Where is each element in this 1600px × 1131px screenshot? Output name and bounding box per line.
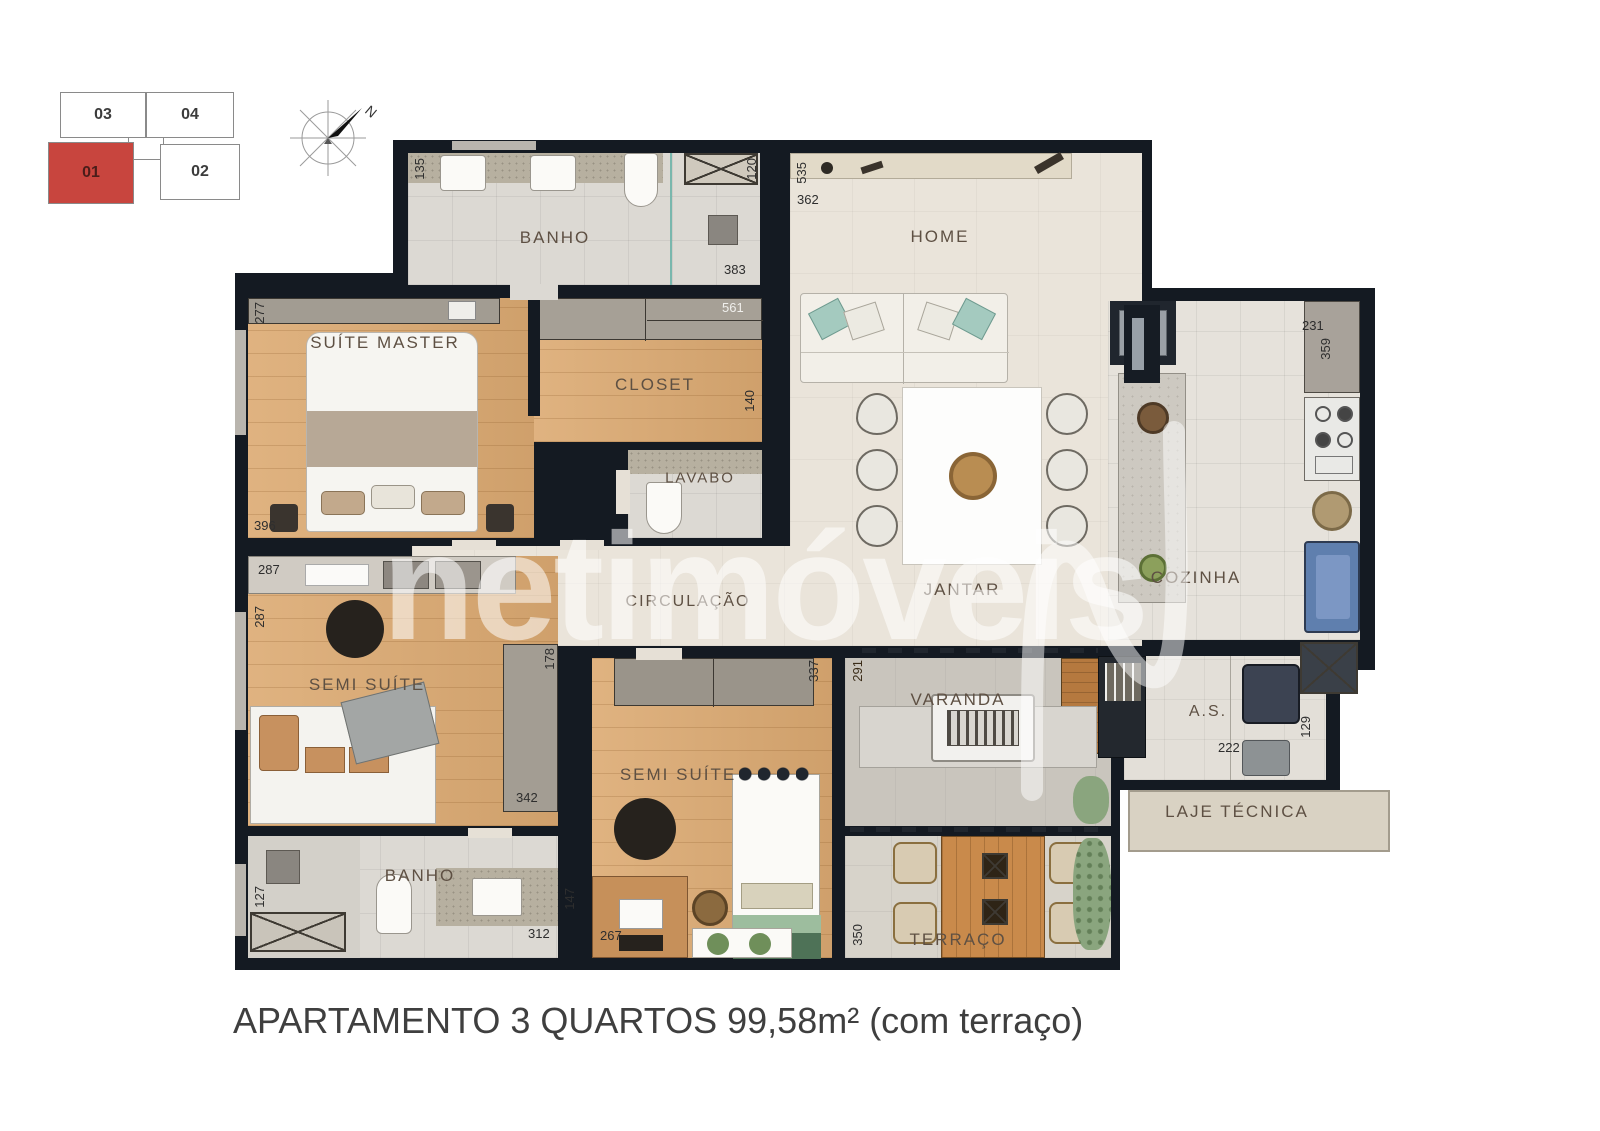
dim-semi1-top: 287 [258,562,280,577]
banho2-shower-bench [250,912,346,952]
terraco-placemat-2 [982,899,1008,925]
home-sofa-seatline [801,352,1009,353]
home-sofa [800,293,1008,383]
semi2-wardrobe [614,658,814,706]
stove-burner-2 [1337,406,1353,422]
varanda-plant [1073,776,1109,824]
cozinha-stove [1304,397,1360,481]
semi1-desk-monitor [383,561,429,589]
cozinha-bottom-cabinet [1300,642,1358,694]
banho-suite-toilet [624,153,658,207]
stove-burner-1 [1315,406,1331,422]
label-varanda: VARANDA [911,690,1006,710]
cozinha-island-bowl [1137,402,1169,434]
semi1-chair [326,600,384,658]
as-washer [1242,664,1300,724]
dim-cozinha-top: 231 [1302,318,1324,333]
window-banho-social [235,864,246,936]
semi2-bowl [692,890,728,926]
label-lavabo: LAVABO [665,470,735,487]
dim-closet-width: 561 [722,300,744,315]
door-suite-master [560,540,604,550]
dim-banho-width: 383 [724,262,746,277]
home-sideboard [790,153,1072,179]
jantar-centerpiece [949,452,997,500]
stove-burner-3 [1315,432,1331,448]
banho-suite-sink-2 [530,155,576,191]
semi1-pillow-side [259,715,299,771]
door-semi-suite-1 [452,540,496,550]
unit-03-label: 03 [94,106,112,124]
dim-cozinha-side: 359 [1318,338,1333,360]
terraco-hedge [1073,838,1111,950]
suite-master-bed [306,332,478,532]
terraco-boundary [850,827,1102,832]
key-plan-unit-02: 02 [160,144,240,200]
jantar-chair-right-1 [1046,393,1088,435]
key-plan-unit-01-highlighted: 01 [48,142,134,204]
varanda-grill-grate [947,710,1019,746]
suite-master-pillow-2 [371,485,415,509]
label-area-servico: A.S. [1189,703,1227,721]
room-semi-suite-2 [592,658,832,958]
room-closet [534,298,762,442]
dim-closet-side: 140 [742,390,757,412]
dim-banho-left: 135 [412,158,427,180]
label-jantar: JANTAR [924,580,1001,600]
lavabo-toilet [646,482,682,534]
banho-suite-shower-drain [708,215,738,245]
dim-as-side: 129 [1298,716,1313,738]
dim-banho2-left: 127 [252,886,267,908]
stove-burner-4 [1337,432,1353,448]
banho-suite-shower-glass [670,153,672,285]
room-lavabo [628,450,762,538]
door-lavabo [616,470,630,514]
home-sofa-split [903,294,904,384]
terraco-placemat-1 [982,853,1008,879]
semi1-bed [250,706,436,824]
semi2-laptop [619,899,663,929]
dim-suite-width: 396 [254,518,276,533]
unit-01-label: 01 [82,164,100,182]
semi2-pillow [741,883,813,909]
jantar-table [902,387,1042,565]
door-banho-suite [510,284,558,300]
label-laje-tecnica: LAJE TÉCNICA [1165,802,1309,822]
dim-semi2-side: 337 [806,660,821,682]
semi2-chair [614,798,676,860]
unit-02-label: 02 [191,163,209,181]
varanda-sliding-door [862,648,1098,653]
as-tank [1242,740,1290,776]
label-semi-suite-2: SEMI SUÍTE [620,765,736,785]
label-cozinha: COZINHA [1151,568,1242,588]
room-banho-social [248,836,558,958]
closet-wardrobe-divider [645,299,646,341]
label-circulacao: CIRCULAÇÃO [626,593,751,611]
suite-master-nightstand-right [486,504,514,532]
label-home: HOME [911,227,970,247]
as-divider [1230,656,1231,780]
cozinha-fruit-bowl [1312,491,1352,531]
varanda-bottle-cabinet [1098,656,1146,758]
home-decor-object [860,161,883,174]
cozinha-sink [1304,541,1360,633]
room-varanda [845,658,1111,826]
compass-rose: N [280,96,380,182]
dim-home-width: 362 [797,192,819,207]
window-suite-master [235,330,246,435]
semi2-side-table [692,928,792,958]
dim-varanda-side: 291 [850,660,865,682]
plan-title: APARTAMENTO 3 QUARTOS 99,58m² (com terra… [233,1000,1083,1042]
banho-suite-sink-1 [440,155,486,191]
home-sofa-pillow-2 [843,301,885,340]
room-banho-suite [408,153,760,285]
semi2-plant-2 [749,933,771,955]
door-banho-social [468,828,512,838]
dim-suite-left: 277 [252,302,267,324]
jantar-chair-right-3 [1046,505,1088,547]
label-banho-social: BANHO [385,866,455,886]
dim-home-left: 535 [794,162,809,184]
jantar-chair-left-3 [856,505,898,547]
dim-terraco-left: 350 [850,924,865,946]
semi1-desk [248,556,516,594]
dim-banho-right: 120 [744,158,759,180]
stove-tray [1315,456,1353,474]
label-suite-master: SUÍTE MASTER [310,333,460,353]
banho2-sink [472,878,522,916]
dim-semi2-width: 267 [600,928,622,943]
banho2-shower-seat [266,850,300,884]
label-terraco: TERRAÇO [909,930,1006,950]
semi1-desk-paper [305,564,369,586]
suite-master-wardrobe-box [448,301,476,320]
semi1-desk-box [435,561,481,589]
dim-semi1-left: 287 [252,606,267,628]
jantar-chair-left-1 [856,393,898,435]
semi1-pillow-1 [305,747,345,773]
dim-as-width: 222 [1218,740,1240,755]
cozinha-sink-basin [1316,555,1350,619]
closet-wardrobe-shelf [647,320,763,321]
key-plan-unit-04: 04 [146,92,234,138]
suite-master-pillow-3 [421,491,465,515]
label-closet: CLOSET [615,375,695,395]
home-decor-globe [821,162,833,174]
jantar-chair-left-2 [856,449,898,491]
window-semi-suite-1 [235,612,246,730]
home-sofa-pillow-4 [952,298,996,340]
tv-panel [1132,318,1144,370]
jantar-chair-right-2 [1046,449,1088,491]
key-plan-unit-03: 03 [60,92,146,138]
door-semi-suite-2 [636,648,682,660]
label-semi-suite-1: SEMI SUÍTE [309,675,425,695]
watermark-n-bracket [1452,282,1560,690]
suite-master-pillow-1 [321,491,365,515]
label-banho-suite: BANHO [520,228,590,248]
window-banho-suite [452,141,536,150]
key-plan: 03 04 01 02 [48,80,258,210]
dim-semi1-width: 342 [516,790,538,805]
semi2-desk [592,876,688,958]
semi2-wardrobe-divider [713,659,714,707]
dim-banho2-width: 312 [528,926,550,941]
wall-stub-suite-closet [528,298,540,416]
compass-north-label: N [362,102,380,121]
semi2-headboard [739,767,815,781]
terraco-chair-1 [893,842,937,884]
semi2-keyboard [619,935,663,951]
dim-semi1-right: 178 [542,648,557,670]
dim-banho2-side: 147 [562,888,577,910]
unit-04-label: 04 [181,106,199,124]
bottle-rack [1105,663,1141,701]
suite-master-blanket [307,411,477,467]
semi2-plant-1 [707,933,729,955]
